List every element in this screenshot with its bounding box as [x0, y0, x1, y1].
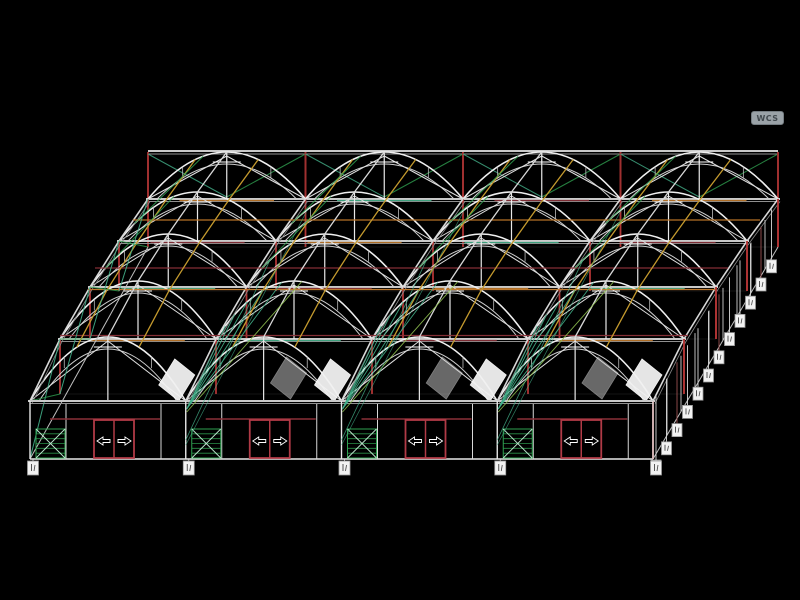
roof-purlins [77, 152, 731, 347]
front-facade [30, 401, 653, 459]
cad-viewport[interactable]: WCS [0, 0, 800, 600]
greenhouse-wireframe-drawing [0, 0, 800, 600]
wall-and-ground-edges [30, 199, 778, 459]
valley-brace-fans [186, 210, 622, 445]
wcs-button[interactable]: WCS [751, 111, 784, 125]
back-gable-wall [148, 151, 778, 199]
